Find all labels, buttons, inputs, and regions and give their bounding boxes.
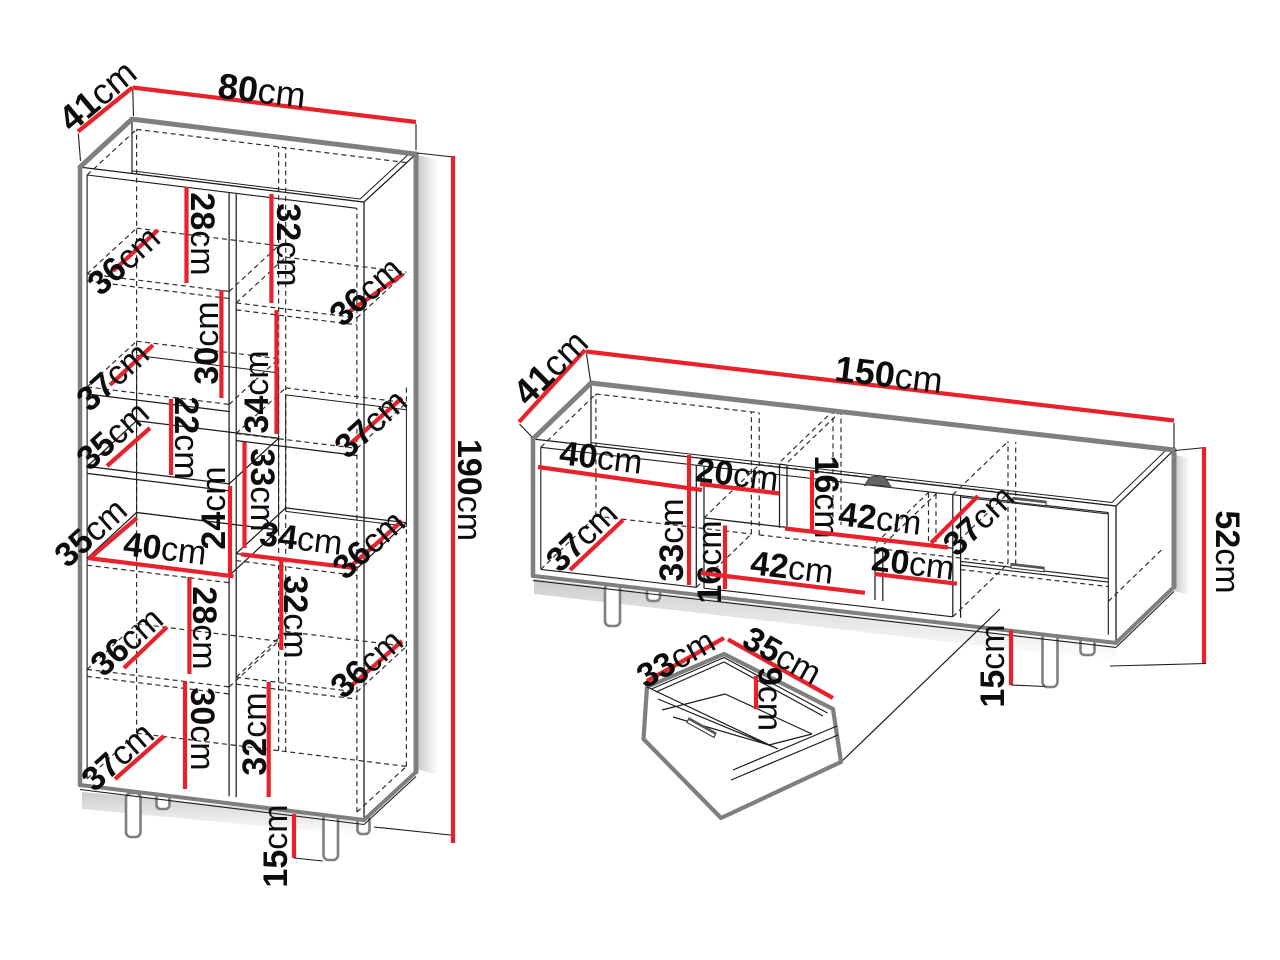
svg-text:28cm: 28cm xyxy=(183,192,221,275)
svg-text:190cm: 190cm xyxy=(450,439,488,541)
svg-text:33cm: 33cm xyxy=(653,498,691,581)
svg-text:32cm: 32cm xyxy=(276,575,314,658)
svg-text:30cm: 30cm xyxy=(183,687,221,770)
svg-text:32cm: 32cm xyxy=(236,692,274,775)
svg-text:15cm: 15cm xyxy=(257,804,295,887)
svg-text:16cm: 16cm xyxy=(691,520,729,603)
svg-text:9cm: 9cm xyxy=(751,667,789,731)
svg-text:52cm: 52cm xyxy=(1208,510,1246,593)
svg-text:28cm: 28cm xyxy=(185,586,223,669)
svg-text:30cm: 30cm xyxy=(188,301,226,384)
svg-text:32cm: 32cm xyxy=(269,203,307,286)
svg-text:34cm: 34cm xyxy=(238,350,276,433)
svg-text:15cm: 15cm xyxy=(974,624,1012,707)
